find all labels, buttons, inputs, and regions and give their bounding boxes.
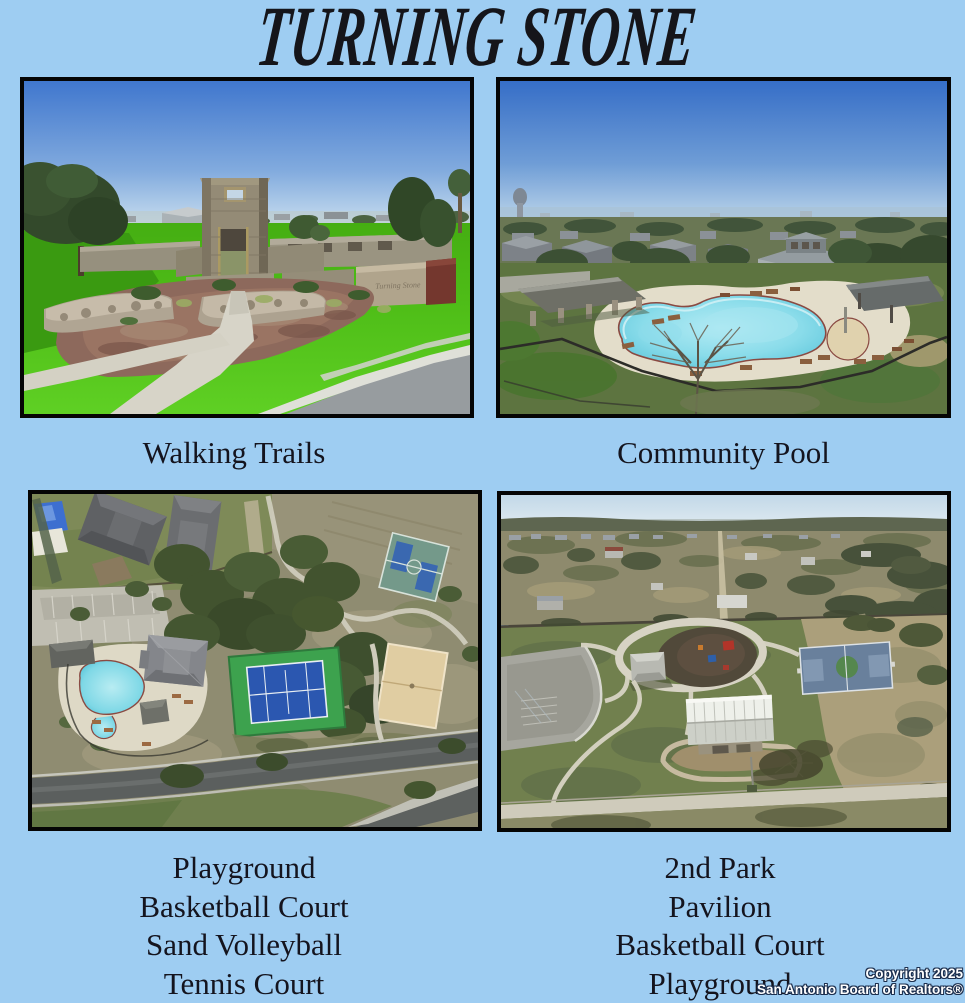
- svg-text:Turning Stone: Turning Stone: [375, 280, 421, 291]
- svg-text:TURNING STONE: TURNING STONE: [252, 0, 701, 75]
